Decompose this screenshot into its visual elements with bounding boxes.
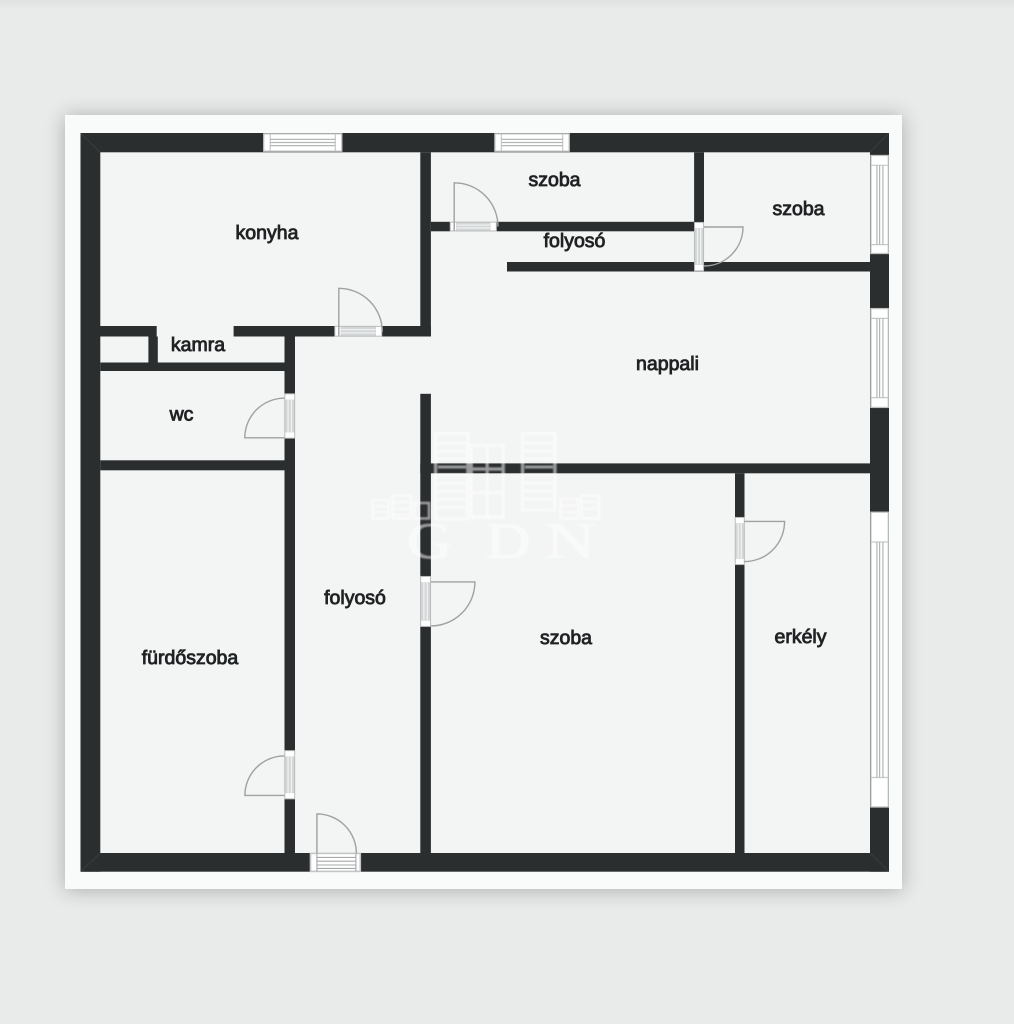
- svg-text:kamra: kamra: [171, 334, 225, 356]
- svg-text:D: D: [485, 513, 530, 569]
- svg-text:szoba: szoba: [540, 627, 592, 649]
- svg-text:G: G: [407, 513, 452, 569]
- svg-text:wc: wc: [169, 404, 194, 426]
- svg-text:N: N: [545, 514, 595, 570]
- svg-text:szoba: szoba: [772, 198, 824, 220]
- svg-text:fürdőszoba: fürdőszoba: [142, 647, 239, 669]
- svg-text:konyha: konyha: [236, 222, 299, 244]
- svg-text:folyosó: folyosó: [544, 230, 606, 252]
- svg-text:nappali: nappali: [636, 353, 699, 375]
- svg-text:szoba: szoba: [528, 169, 580, 191]
- svg-text:folyosó: folyosó: [324, 587, 386, 609]
- svg-text:erkély: erkély: [774, 626, 826, 648]
